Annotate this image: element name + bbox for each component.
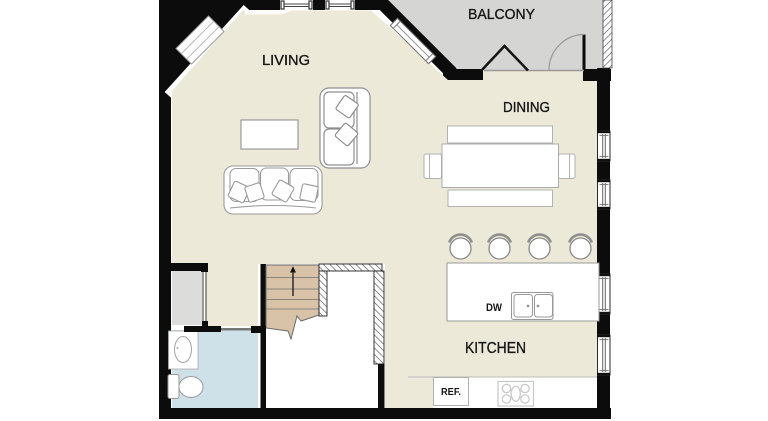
svg-text:DINING: DINING — [503, 99, 550, 116]
svg-text:LIVING: LIVING — [262, 52, 310, 69]
svg-text:KITCHEN: KITCHEN — [465, 340, 526, 357]
svg-text:BALCONY: BALCONY — [468, 6, 535, 23]
svg-text:DW: DW — [486, 302, 503, 314]
svg-text:REF.: REF. — [441, 387, 461, 398]
